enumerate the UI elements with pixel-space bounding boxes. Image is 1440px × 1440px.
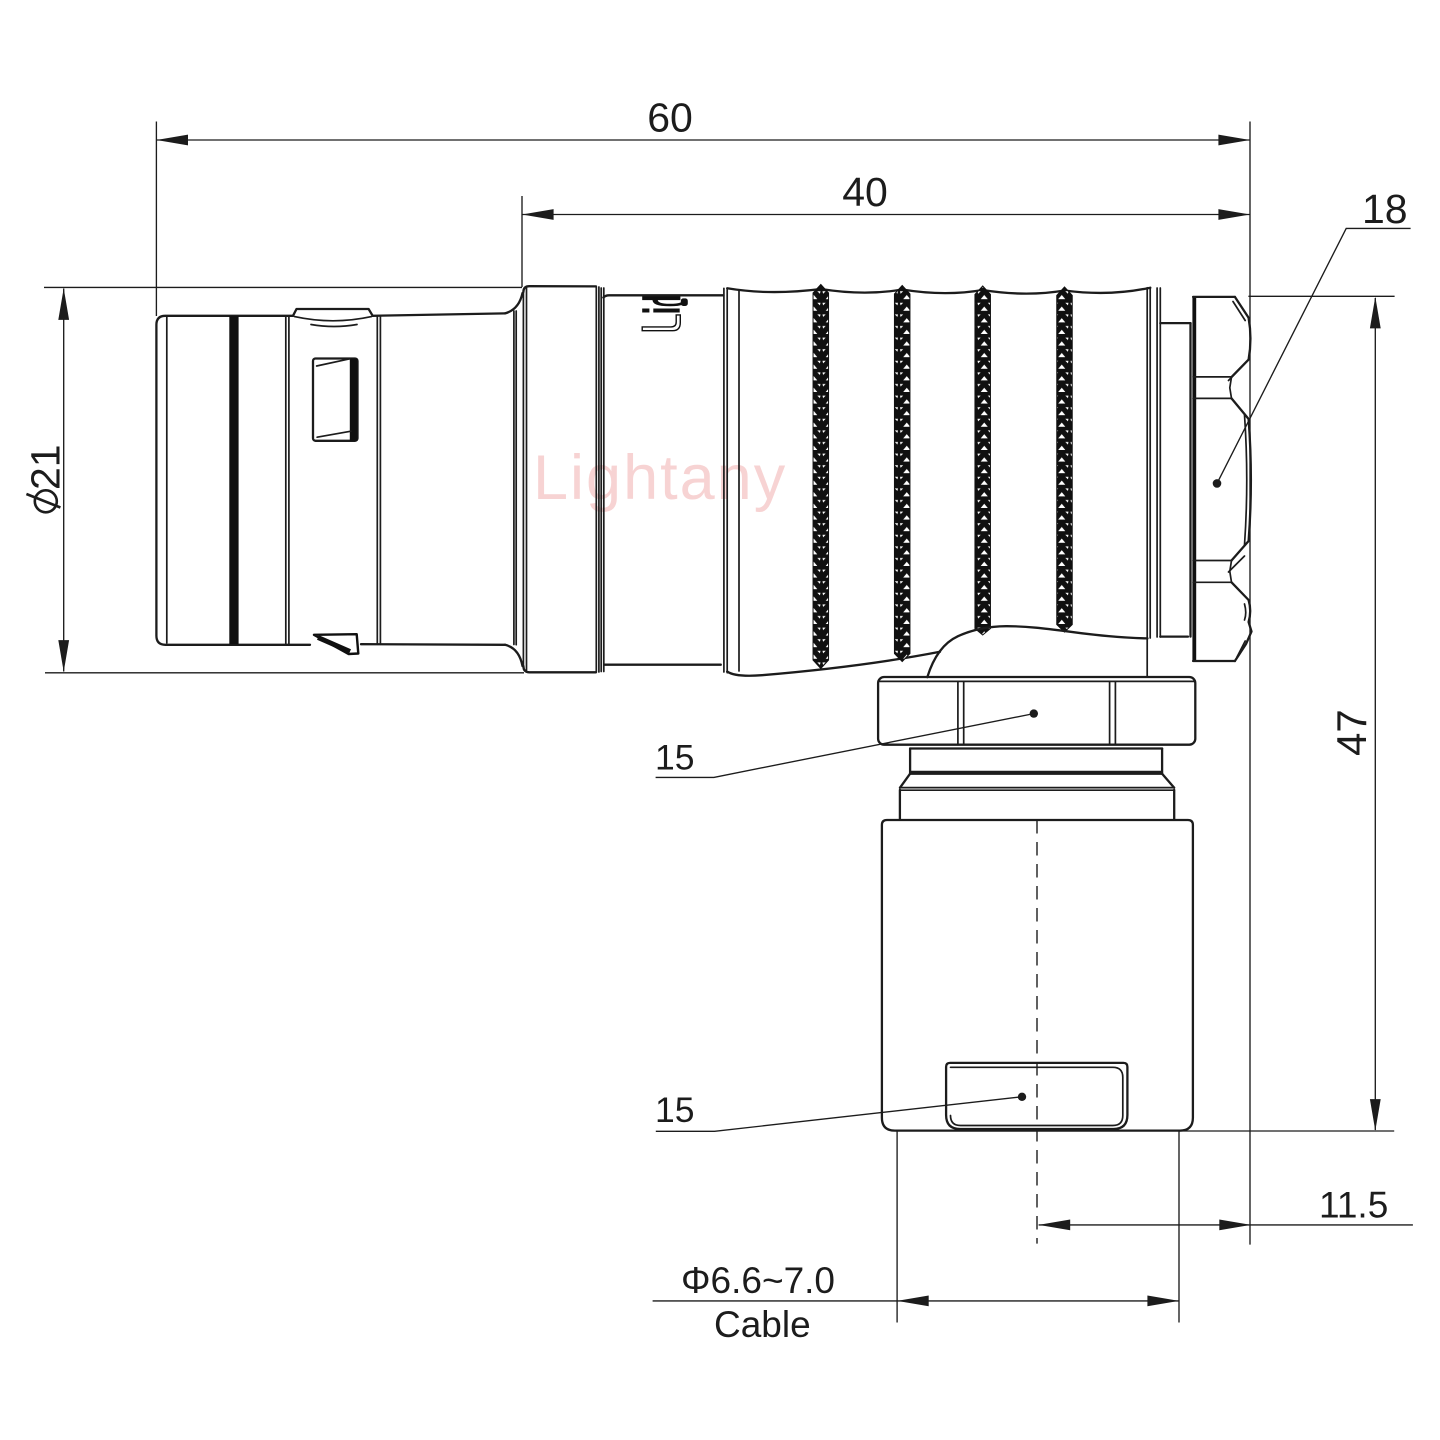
svg-text:47: 47 xyxy=(1328,709,1375,756)
svg-text:21: 21 xyxy=(22,444,68,490)
svg-text:Lightany: Lightany xyxy=(533,443,787,513)
svg-text:15: 15 xyxy=(655,1090,695,1130)
svg-text:Cable: Cable xyxy=(714,1304,811,1345)
svg-text:15: 15 xyxy=(655,737,695,777)
svg-text:Φ6.6~7.0: Φ6.6~7.0 xyxy=(681,1260,835,1301)
svg-text:60: 60 xyxy=(647,95,693,141)
svg-text:18: 18 xyxy=(1362,186,1408,232)
svg-text:40: 40 xyxy=(842,169,888,215)
svg-text:11.5: 11.5 xyxy=(1319,1185,1388,1226)
